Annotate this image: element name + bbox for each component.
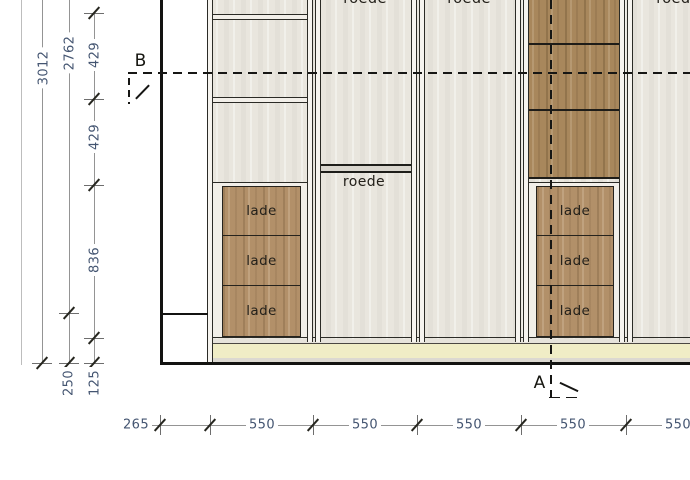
shelf bbox=[211, 97, 307, 103]
section-line-b bbox=[128, 72, 690, 74]
rod-label: roede bbox=[343, 174, 385, 190]
section-b-tail bbox=[128, 78, 130, 104]
partition-panel bbox=[315, 0, 321, 342]
rod-label-top: roede bbox=[656, 0, 690, 7]
drawer-label: lade bbox=[560, 253, 591, 269]
dimension-tick bbox=[84, 328, 104, 348]
drawer: lade bbox=[536, 285, 614, 337]
dimension-label: 550 bbox=[453, 418, 485, 433]
drawer-label: lade bbox=[246, 203, 277, 219]
wall-line bbox=[160, 0, 163, 364]
shelf bbox=[211, 14, 307, 20]
partition-panel bbox=[307, 0, 313, 342]
cabinet-side-panel bbox=[207, 0, 213, 363]
rod-shelf bbox=[319, 164, 411, 173]
section-a-label: A bbox=[534, 373, 546, 393]
dimension-tick bbox=[200, 415, 220, 435]
partition-panel bbox=[619, 0, 625, 342]
drawer: lade bbox=[222, 186, 301, 236]
partition-panel bbox=[627, 0, 633, 342]
wardrobe-elevation-drawing: roede roede roede roede lade lade lade l… bbox=[0, 0, 690, 480]
dimension-tick bbox=[84, 89, 104, 109]
rod-label-top: roede bbox=[447, 0, 491, 7]
drawer: lade bbox=[222, 235, 301, 286]
wall-plinth-line bbox=[162, 313, 208, 315]
partition-panel bbox=[515, 0, 521, 342]
dimension-tick bbox=[407, 415, 427, 435]
dimension-tick bbox=[511, 415, 531, 435]
drawer-label: lade bbox=[560, 303, 591, 319]
drawer: lade bbox=[222, 285, 301, 337]
wood-door-unit bbox=[527, 0, 619, 179]
section-b-arrow bbox=[135, 84, 150, 99]
section-a-arrow bbox=[560, 381, 579, 391]
dimension-label: 3012 bbox=[37, 48, 52, 89]
drawer-label: lade bbox=[560, 203, 591, 219]
dimension-tick bbox=[84, 175, 104, 195]
dimension-tick bbox=[303, 415, 323, 435]
extension-line bbox=[21, 0, 22, 365]
dimension-label: 550 bbox=[246, 418, 278, 433]
floor-line bbox=[160, 362, 690, 365]
dimension-label: 265 bbox=[120, 418, 152, 433]
drawer-label: lade bbox=[246, 303, 277, 319]
partition-panel bbox=[411, 0, 417, 342]
dimension-tick bbox=[150, 415, 170, 435]
dimension-label: 429 bbox=[88, 121, 103, 153]
dimension-label: 836 bbox=[88, 244, 103, 276]
wood-unit-divider bbox=[527, 109, 619, 111]
dimension-tick bbox=[59, 303, 79, 323]
dimension-label: 2762 bbox=[63, 33, 78, 74]
dimension-label: 550 bbox=[349, 418, 381, 433]
dimension-tick bbox=[32, 353, 52, 373]
partition-panel bbox=[523, 0, 529, 342]
rod-label-top: roede bbox=[343, 0, 387, 7]
section-b-label: B bbox=[135, 51, 147, 71]
section-line-a bbox=[550, 0, 552, 398]
plinth-cream-band bbox=[211, 343, 690, 358]
section-a-tail bbox=[549, 397, 582, 399]
drawer-label: lade bbox=[246, 253, 277, 269]
dimension-label: 550 bbox=[662, 418, 690, 433]
dimension-label: 550 bbox=[557, 418, 589, 433]
drawer: lade bbox=[536, 235, 614, 286]
wood-unit-divider bbox=[527, 43, 619, 45]
dimension-label: 429 bbox=[88, 39, 103, 71]
dimension-tick bbox=[84, 3, 104, 23]
dimension-label: 125 bbox=[88, 367, 103, 399]
dimension-tick bbox=[616, 415, 636, 435]
drawer: lade bbox=[536, 186, 614, 236]
partition-panel bbox=[419, 0, 425, 342]
dimension-label: 250 bbox=[62, 367, 77, 399]
